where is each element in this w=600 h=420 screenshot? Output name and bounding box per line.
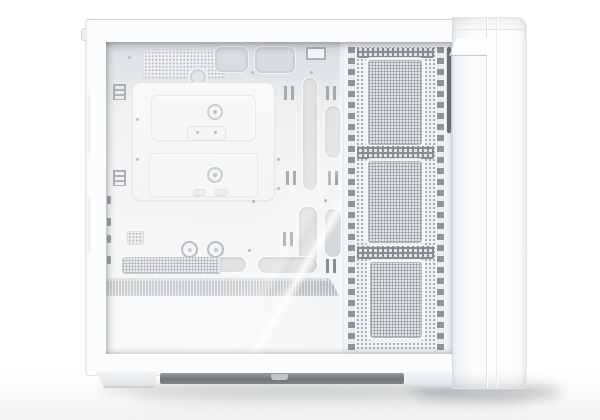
screw-dot <box>196 131 199 134</box>
cover-thumbscrew <box>207 167 223 183</box>
perf-divider-band <box>357 146 434 159</box>
screw-dot <box>214 131 217 134</box>
bezel-top-seam <box>453 29 526 30</box>
perf-header-band <box>357 48 434 58</box>
psu-vent-end <box>220 257 246 272</box>
cable-grommet <box>255 47 295 73</box>
screw-dot <box>136 118 139 121</box>
glass-clip <box>107 218 111 226</box>
tie-anchor <box>328 171 338 185</box>
tie-anchor <box>284 86 294 100</box>
tie-anchor-ladder <box>113 170 126 186</box>
screw-dot <box>136 158 139 161</box>
mesh-column <box>346 43 446 354</box>
filter-pull-tab <box>271 374 288 380</box>
cable-grommet <box>215 47 248 72</box>
glass-clip <box>107 256 111 264</box>
floor-shadow <box>130 388 530 408</box>
perf-divider-band <box>357 246 434 259</box>
cover-tab <box>215 189 228 196</box>
bezel-groove <box>496 18 497 388</box>
screw-dot <box>252 200 255 203</box>
cable-slot <box>325 106 341 158</box>
case-foot-left <box>96 372 157 388</box>
screw-dot <box>310 71 313 74</box>
cable-slot-elbow-h <box>258 257 317 273</box>
fan-mesh-zone-2 <box>368 161 422 243</box>
tie-bracket <box>306 47 326 60</box>
fan-mesh-zone-1 <box>368 60 422 145</box>
glass-clip <box>107 196 111 204</box>
top-vent-mesh <box>143 50 225 79</box>
fan-mesh-zone-3 <box>370 262 422 338</box>
speaker-mesh <box>127 231 144 245</box>
tie-anchor <box>326 259 336 273</box>
rear-rail-top <box>86 95 90 153</box>
screw-dot <box>277 158 280 161</box>
rear-rail-bottom <box>86 196 90 254</box>
glass-clip <box>107 235 111 243</box>
product-photo <box>0 0 600 420</box>
cover-thumbscrew <box>207 104 223 120</box>
screw-dot <box>324 199 327 202</box>
shroud-thumbscrew <box>207 241 224 258</box>
accent-band <box>106 278 339 296</box>
rear-thumbscrew-tab <box>81 28 87 41</box>
front-bezel <box>452 17 527 389</box>
glass-interior <box>106 42 342 354</box>
screw-dot <box>277 187 280 190</box>
cover-tab <box>193 189 206 196</box>
tie-anchor <box>283 232 293 246</box>
psu-vent-strip <box>122 257 222 274</box>
screw-dot <box>251 71 254 74</box>
bezel-groove <box>486 18 487 388</box>
tie-anchor <box>286 171 296 185</box>
tie-anchor <box>326 86 336 100</box>
screw-dot <box>248 249 251 252</box>
motherboard-tray <box>132 82 275 201</box>
shroud-thumbscrew <box>181 241 198 258</box>
slot-strip-left <box>347 47 356 350</box>
screw-dot <box>128 56 131 59</box>
slot-strip-right <box>436 47 445 350</box>
panel-gap-slot <box>447 47 451 133</box>
cable-slot <box>303 78 317 190</box>
mid-cutout <box>187 126 226 141</box>
cable-slot <box>325 209 341 257</box>
tie-anchor-ladder <box>113 84 126 100</box>
